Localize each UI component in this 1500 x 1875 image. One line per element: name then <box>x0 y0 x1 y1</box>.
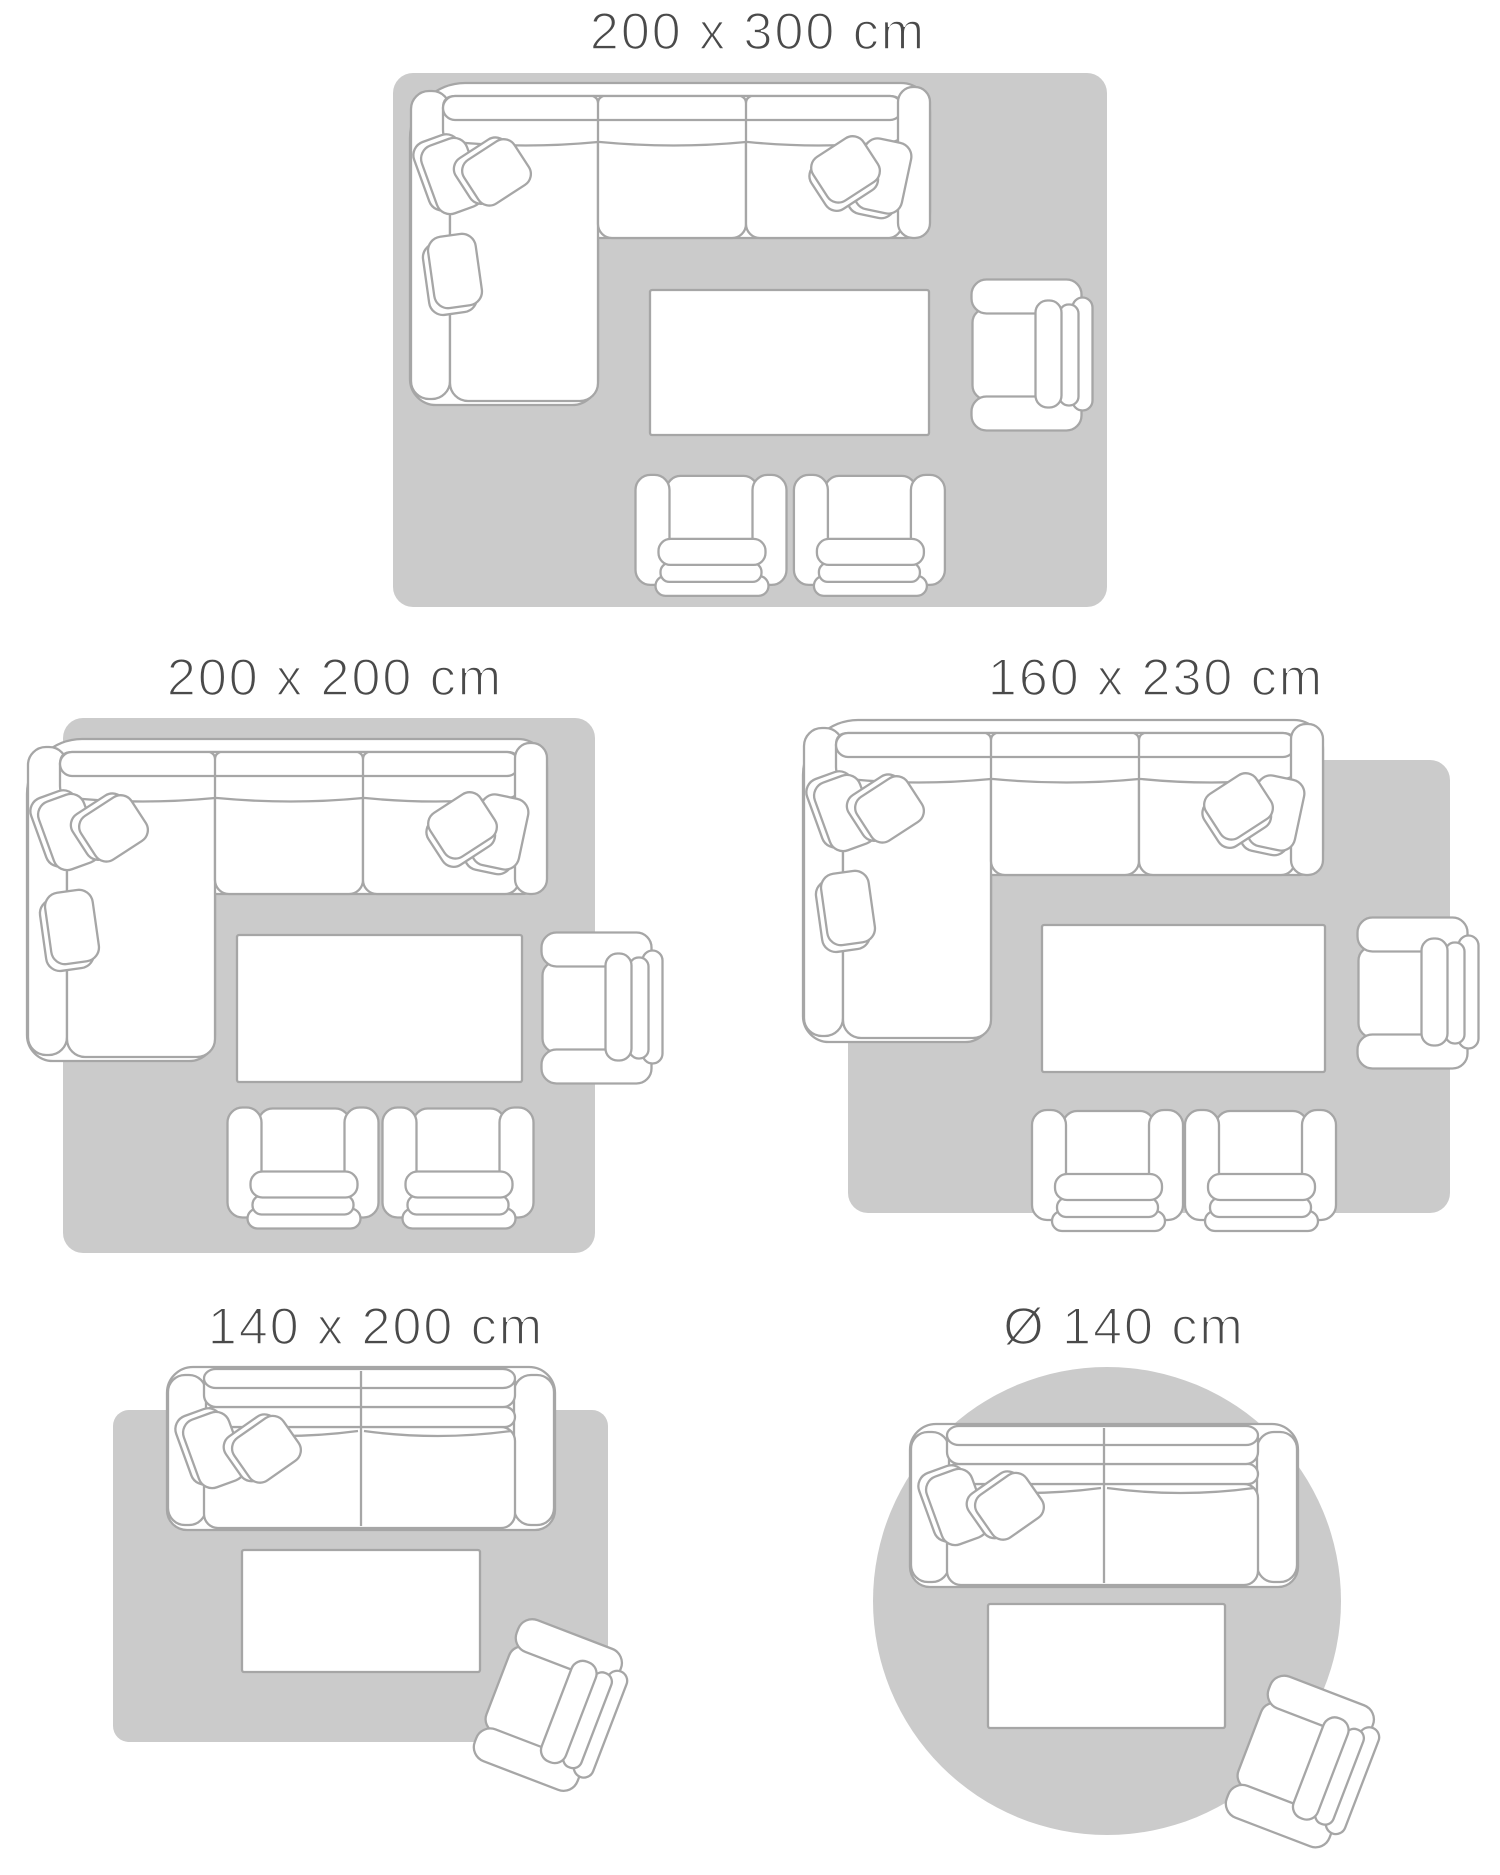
svg-text:200 x 200 cm: 200 x 200 cm <box>167 649 503 707</box>
svg-text:Ø 140 cm: Ø 140 cm <box>1003 1298 1244 1356</box>
svg-text:160 x 230 cm: 160 x 230 cm <box>988 649 1324 707</box>
svg-text:140 x 200 cm: 140 x 200 cm <box>208 1298 544 1356</box>
svg-text:200 x 300 cm: 200 x 300 cm <box>590 3 926 61</box>
